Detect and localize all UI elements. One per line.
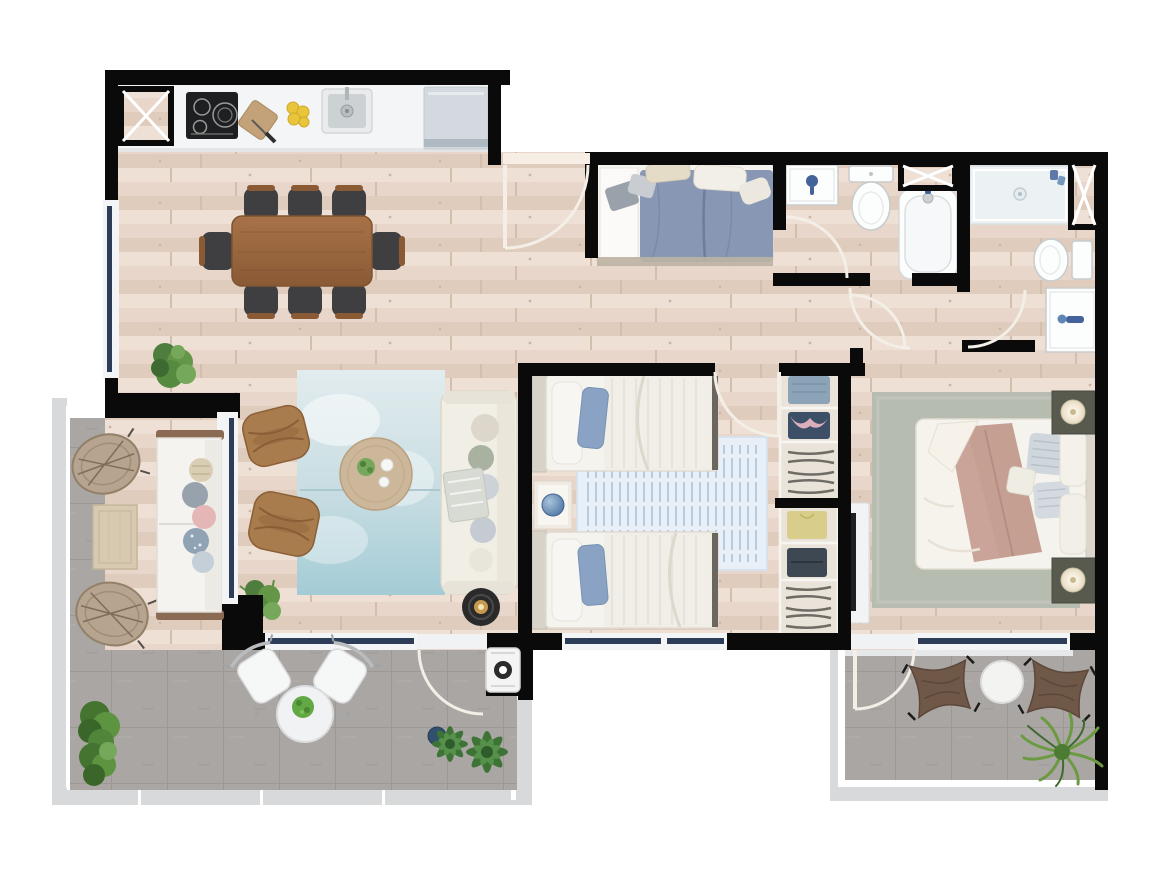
black-side-table (462, 588, 500, 626)
wall-kitchen-top (105, 70, 510, 85)
window-twin-bottom (562, 633, 727, 650)
bedroom-top (597, 161, 773, 266)
wall-closet-divider (775, 498, 843, 508)
floor-plan-canvas (0, 0, 1170, 896)
closet-top (780, 370, 840, 500)
outdoor-pillow (189, 458, 213, 482)
sofa-pillow (470, 517, 496, 543)
white-pillow (1060, 494, 1086, 554)
floor-plan (0, 0, 1170, 896)
blue-pillow (577, 544, 608, 606)
table-plant (357, 458, 375, 476)
toiletries (1050, 170, 1058, 180)
railing-joint (260, 790, 263, 805)
cup (381, 459, 393, 471)
outdoor-pillow (192, 551, 214, 573)
cooktop (186, 92, 238, 139)
knit-pillow (1006, 466, 1036, 496)
wall-twin-bottom-b (727, 633, 851, 650)
refrigerator (424, 87, 488, 149)
wall-master-door-stub (850, 348, 863, 374)
wall-top-right-section (592, 152, 1108, 165)
table-plant (292, 696, 314, 718)
blue-pillow (577, 387, 609, 449)
kitchen-sink (322, 87, 372, 133)
outdoor-coffee-table (93, 505, 137, 569)
terrace-door-threshold (417, 634, 487, 649)
master-nightstand-bottom (1052, 558, 1095, 603)
twin-bed-2 (532, 531, 718, 629)
sphere-lamp (542, 494, 564, 516)
master-nightstand-top (1052, 391, 1095, 434)
railing-joint (382, 790, 385, 805)
terrace-railing-bottom (52, 790, 518, 805)
folded-clothes-yellow (787, 511, 827, 539)
tv (851, 513, 856, 611)
outdoor-side-table (981, 661, 1023, 703)
white-pillow (1060, 430, 1086, 486)
wall-living-twin (518, 363, 532, 650)
bistro-table (277, 686, 333, 742)
throw-blanket (443, 467, 490, 522)
white-pillow (693, 164, 747, 192)
wall-right (1095, 152, 1108, 790)
shaft-kitchen (121, 89, 171, 143)
closet-bottom (780, 505, 838, 635)
window-living-bottom (265, 633, 417, 650)
shower-tray (970, 166, 1070, 224)
terrace-railing-left (830, 650, 838, 800)
faucet-blue (1066, 316, 1084, 323)
wall-twin-top (518, 363, 715, 376)
vanity-sink (786, 165, 838, 205)
ensuite-vanity (1046, 288, 1098, 352)
outdoor-pillow (183, 528, 209, 554)
sofa-pillow (469, 548, 493, 572)
faucet-blue (806, 175, 818, 187)
wall-closet-master (838, 373, 851, 650)
wall-bathroom-bottom-a (773, 273, 870, 286)
footboard (712, 533, 718, 627)
white-pillow (552, 539, 582, 621)
bed-bench (597, 257, 773, 266)
cup (379, 477, 389, 487)
wall-master-bottom-b (1070, 633, 1108, 650)
entry-threshold (503, 153, 590, 164)
headboard (1086, 413, 1096, 573)
sofa-pillow (471, 414, 499, 442)
outdoor-pillow (182, 482, 208, 508)
toilet (849, 166, 893, 230)
shaft-ensuite (1071, 163, 1097, 227)
twin-bed-1 (532, 374, 718, 472)
wall-kitchen-right (488, 70, 501, 165)
outdoor-sofa (156, 430, 224, 620)
terrace-railing-bottom (830, 787, 1108, 801)
bathtub (899, 187, 957, 279)
ac-unit (486, 648, 520, 692)
dining-table (232, 216, 372, 286)
wall-twin-bottom-a (518, 633, 562, 650)
railing-inner-line (840, 654, 845, 784)
folded-clothes-blue (788, 376, 830, 404)
white-pillow (552, 382, 582, 464)
railing-joint (138, 790, 141, 805)
twin-nightstand (534, 481, 572, 529)
sofa-pillow (468, 445, 494, 471)
ensuite-toilet (1034, 239, 1092, 281)
outdoor-pillow (192, 505, 216, 529)
window-dining-left (103, 200, 119, 378)
wall-between-bathrooms (957, 152, 970, 292)
shaft-bathroom (901, 164, 955, 188)
terrace-railing-left (52, 398, 67, 804)
master-bed (916, 413, 1096, 573)
terrace-railing-right-stub (517, 700, 532, 805)
wall-bedroom-top-right (773, 152, 786, 230)
exterior-cutout (501, 70, 1108, 152)
sofa (441, 391, 517, 594)
coffee-table (340, 438, 412, 510)
terrace-door-threshold (851, 634, 915, 649)
